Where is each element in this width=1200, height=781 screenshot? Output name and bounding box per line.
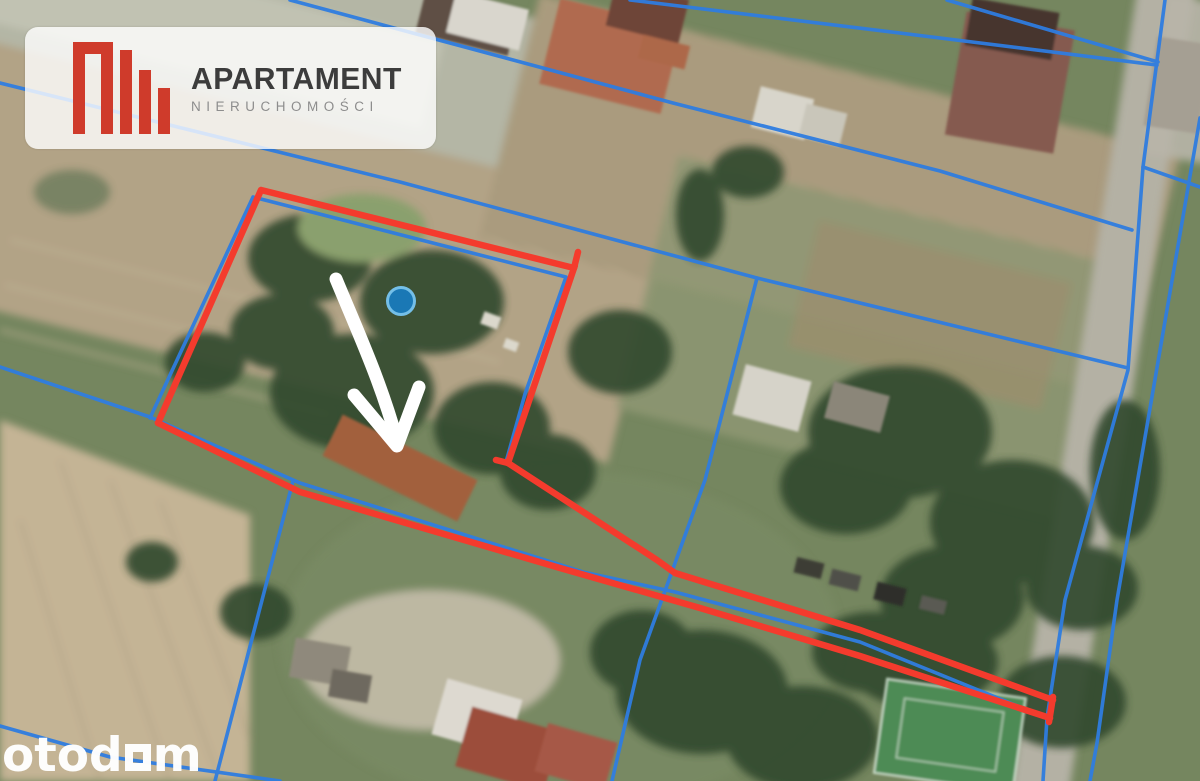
- agency-logo-icon: [73, 42, 170, 134]
- otodom-watermark: otodm: [2, 732, 202, 779]
- location-dot: [388, 288, 415, 315]
- logo-doorframe-shape: [73, 42, 113, 134]
- agency-logo: APARTAMENT NIERUCHOMOŚCI: [25, 27, 436, 149]
- logo-bar: [139, 70, 151, 134]
- watermark-text-prefix: otod: [2, 728, 123, 781]
- map-canvas: APARTAMENT NIERUCHOMOŚCI otodm: [0, 0, 1200, 781]
- boundary-end-cap: [1049, 697, 1053, 722]
- agency-logo-text: APARTAMENT NIERUCHOMOŚCI: [191, 63, 408, 114]
- agency-name: APARTAMENT: [191, 63, 402, 94]
- boundary-corner-tick: [574, 252, 578, 268]
- watermark-text-suffix: m: [153, 728, 202, 781]
- logo-bar: [120, 50, 132, 134]
- boundary-corner-tick: [496, 460, 508, 463]
- agency-tagline: NIERUCHOMOŚCI: [191, 100, 408, 114]
- watermark-square-glyph: [125, 744, 151, 771]
- logo-bar: [158, 88, 170, 134]
